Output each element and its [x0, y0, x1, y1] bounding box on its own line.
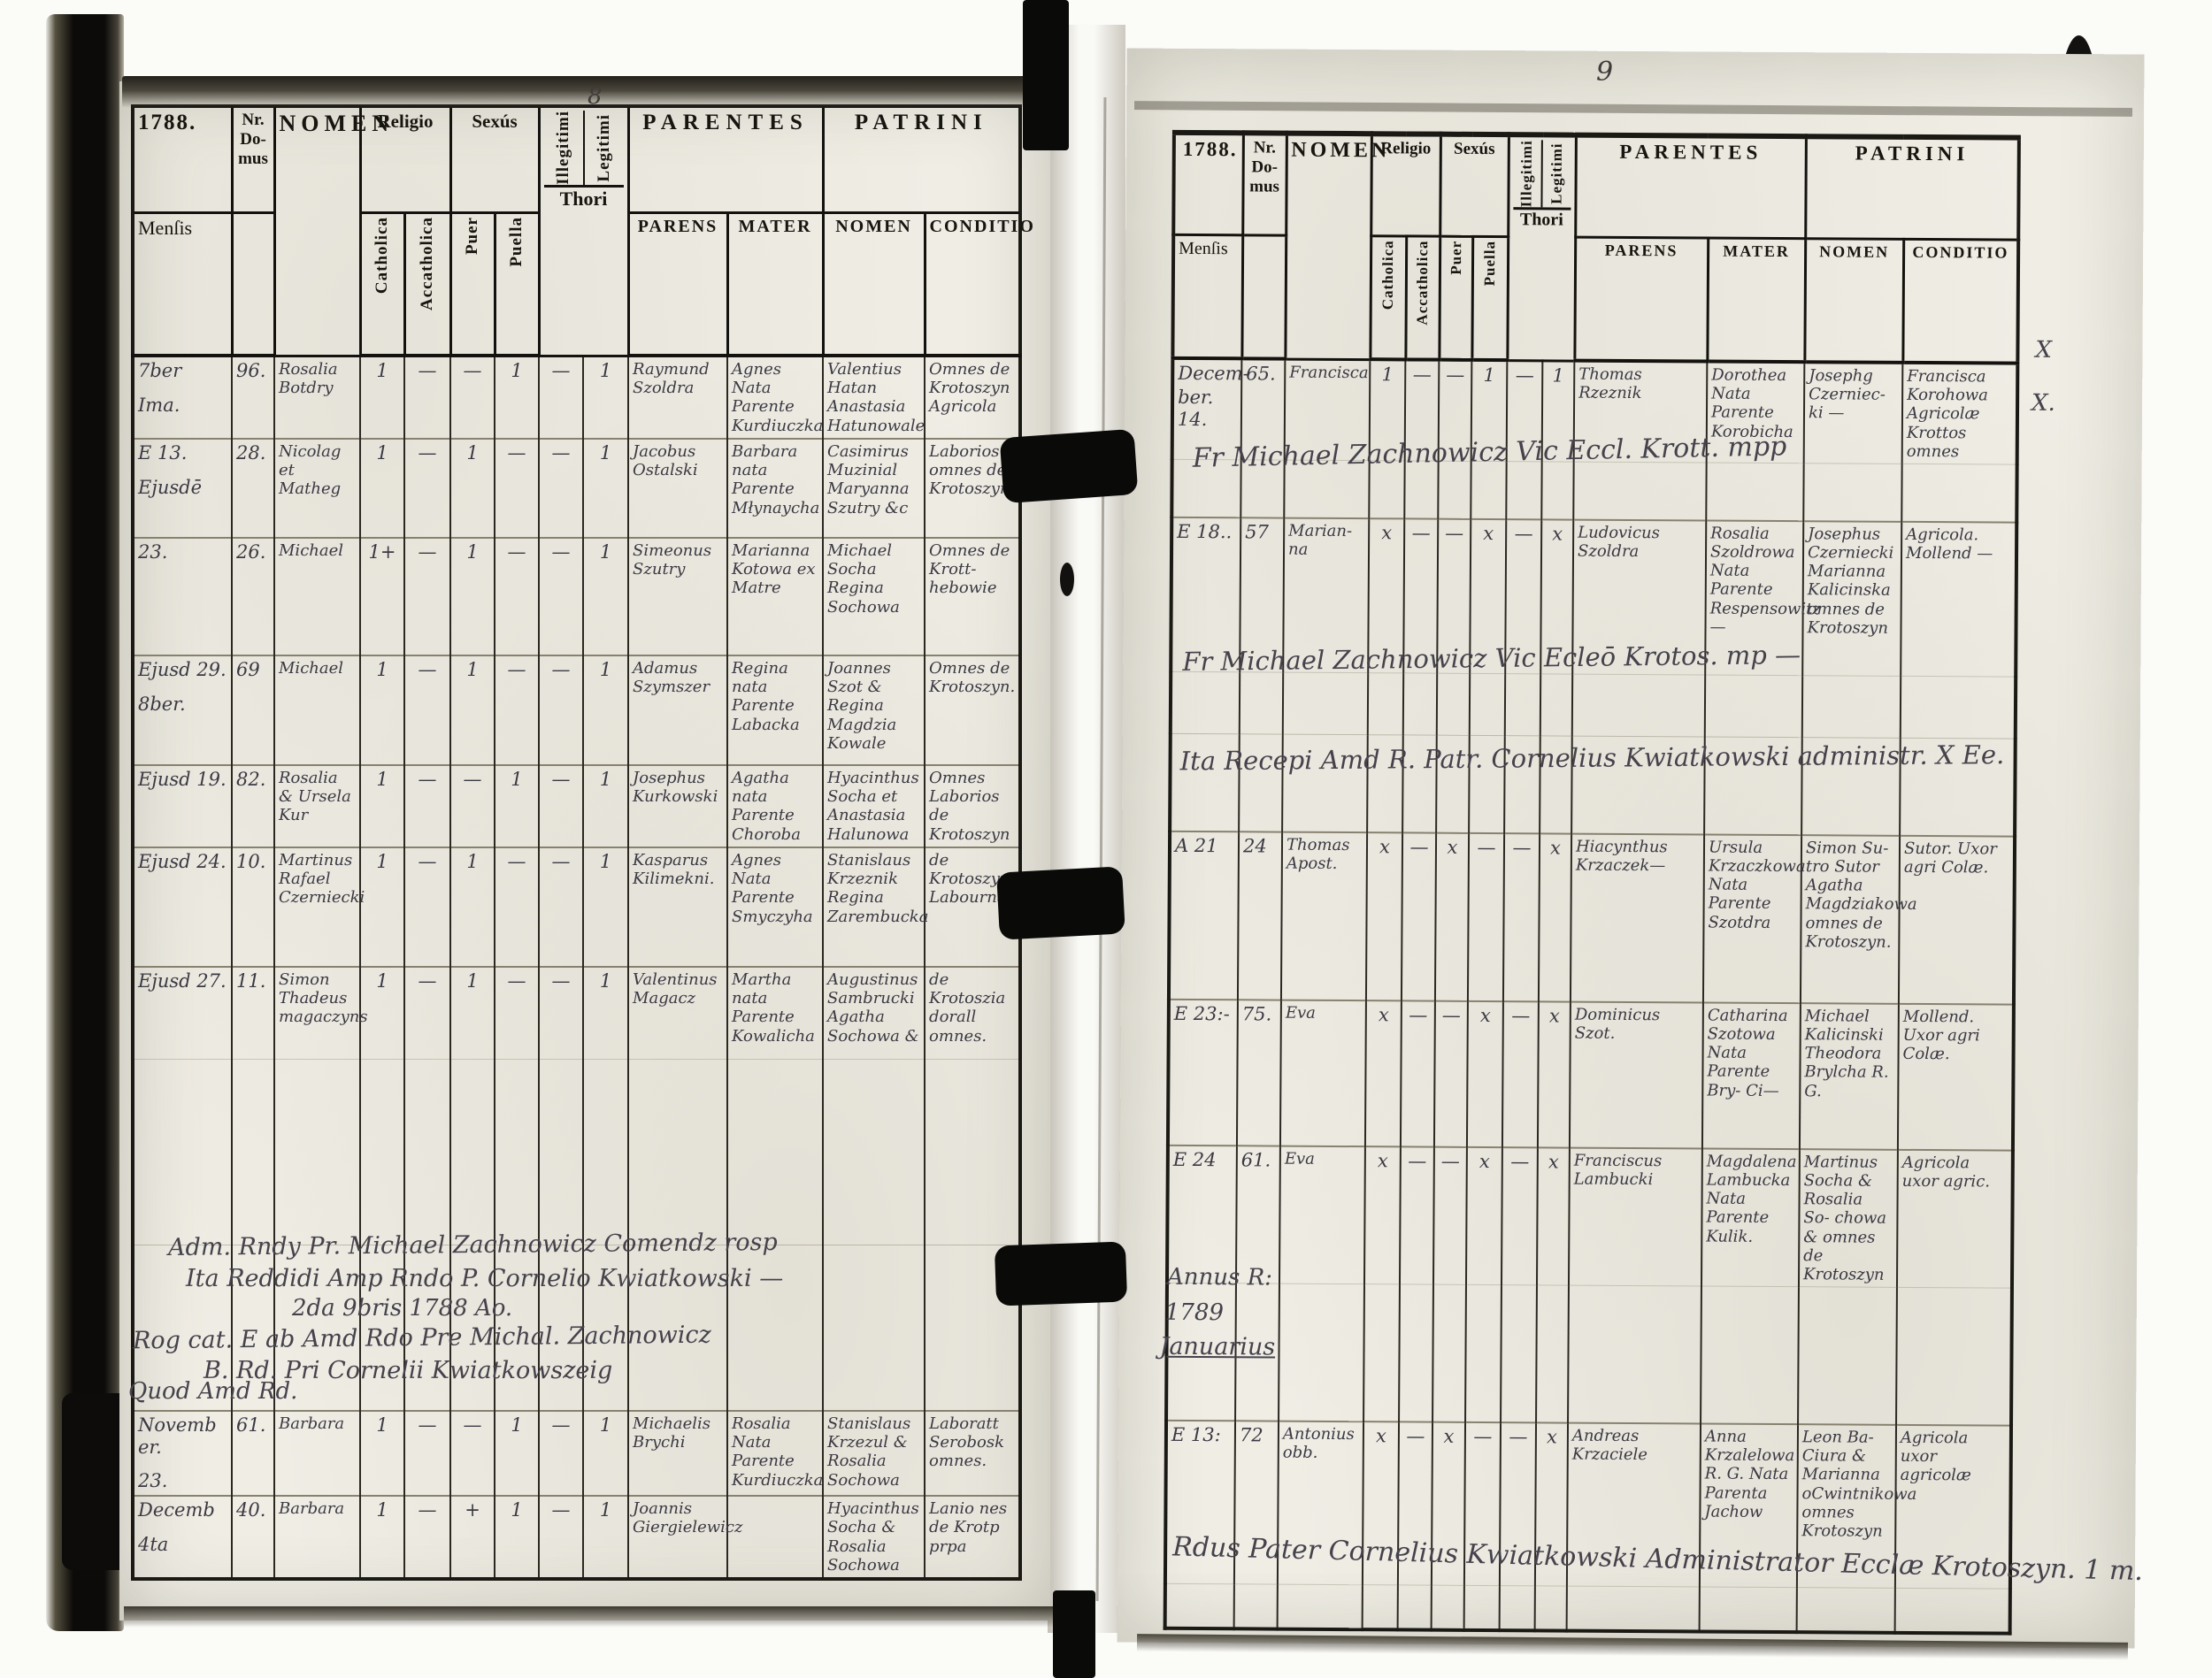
cell-nomen: Martinus Rafael Czerniecki [274, 847, 360, 967]
mark-accatholica: — [1402, 832, 1436, 1000]
cell-nr-domus: 82. [232, 765, 274, 847]
cell-conditio: Sutor. Uxor agri Colæ. [1899, 836, 2015, 1005]
mark-accatholica: — [404, 1496, 450, 1579]
cell-mensis: E 23:- [1168, 999, 1238, 1145]
mark-accatholica: — [1401, 1000, 1435, 1146]
mark-catholica: x [1366, 832, 1402, 1000]
mark-illegitimi: — [539, 847, 583, 967]
mark-accatholica: — [404, 967, 450, 1060]
column-header-puella: Puella [507, 217, 526, 267]
cell-mater: Barbara nata Parente Młynaycha [727, 439, 823, 538]
column-header-puer: Puer [463, 217, 482, 255]
mark-legitimi: 1 [583, 356, 628, 439]
cell-mater: Agatha nata Parente Choroba [727, 765, 823, 847]
register-page-left: 1788. Nr. Do- mus NOMEN Religio Sexús Il… [119, 81, 1050, 1621]
column-header-conditio: CONDITIO [925, 212, 1020, 356]
cell-conditio: Laboratt Serobosk omnes. [925, 1411, 1020, 1496]
column-header-accatholica: Accatholica [418, 217, 437, 310]
cell-mater [727, 1496, 823, 1579]
entry-row: Decemb4ta 40. Barbara 1 — + 1 — 1 Joanni… [133, 1496, 1020, 1579]
cell-conditio: Omnes de Krotoszyn. [925, 655, 1020, 765]
scanned-register-spread: { "scan": { "left_page_number": "8", "ri… [0, 0, 2212, 1678]
mark-puer: — [1434, 1000, 1468, 1146]
mark-puella: — [495, 439, 539, 538]
mark-puer: — [450, 356, 495, 439]
mark-catholica: x [1364, 1146, 1401, 1284]
mark-illegitimi: — [1503, 833, 1540, 1001]
mark-illegitimi: — [539, 538, 583, 655]
cell-mater: Agnes Nata Parente Kurdiuczka [727, 356, 823, 439]
cell-parens: Franciscus Lambucki [1569, 1147, 1702, 1286]
cell-nomen: Barbara [274, 1496, 360, 1579]
cell-patrini-nomen: Michael Kalicinski Theodora Brylcha R. G… [1800, 1003, 1899, 1150]
binding-tie-bottom [1053, 1590, 1095, 1678]
cell-nr-domus: 75. [1237, 1000, 1281, 1145]
mark-puer: — [450, 1411, 495, 1496]
mark-legitimi: x [1537, 1147, 1570, 1285]
mark-catholica: 1 [360, 765, 404, 847]
column-header-illegitimi: Illegitimi [554, 111, 573, 185]
mark-legitimi: 1 [583, 1411, 628, 1496]
column-header-mensis: Menſis [1172, 234, 1242, 358]
column-header-catholica: Catholica [373, 217, 392, 294]
mark-illegitimi: — [539, 765, 583, 847]
mark-catholica: 1 [360, 356, 404, 439]
cell-patrini-nomen: Joannes Szot & Regina Magdzia Kowale [823, 655, 925, 765]
margin-cross-mark-2: X. [2032, 390, 2055, 417]
cell-mensis: Ejusd 29.8ber. [133, 655, 232, 765]
column-header-puella: Puella [1481, 240, 1499, 285]
mark-puer: — [450, 765, 495, 847]
column-header-accatholica: Accatholica [1414, 240, 1432, 325]
return-note-line3: 2da 9bris 1788 Ao. [292, 1295, 512, 1322]
cell-patrini-nomen: Simon Su- tro Sutor Agatha Magdziakowa o… [1801, 835, 1900, 1004]
cell-mensis: Ejusd 19. [133, 765, 232, 847]
column-header-parens: PARENS [628, 212, 727, 356]
cell-parens: Valentinus Magacz [628, 967, 727, 1060]
cell-patrini-nomen: Stanislaus Krzezul & Rosalia Sochowa [823, 1411, 925, 1496]
entry-row: E 13.Ejusdē 28. Nicolag et Matheg 1 — 1 … [133, 439, 1020, 538]
column-header-sexus: Sexús [1440, 134, 1509, 236]
column-header-thori: Thori [1513, 210, 1571, 230]
mark-accatholica: — [1400, 1146, 1434, 1284]
cell-nr-domus: 61. [232, 1411, 274, 1496]
mark-catholica: 1 [360, 847, 404, 967]
cell-nr-domus: 11. [232, 967, 274, 1060]
cell-mensis: Ejusd 27. [133, 967, 232, 1060]
column-header-legitimi: Legitimi [1548, 143, 1565, 205]
binding-tie-lower [995, 1241, 1127, 1306]
spacer-row [133, 1060, 1020, 1245]
marginal-note-row [1165, 1584, 2010, 1634]
cell-nr-domus: 10. [232, 847, 274, 967]
cell-parens: Jacobus Ostalski [628, 439, 727, 538]
cell-mensis: Novemb er.23. [133, 1411, 232, 1496]
mark-accatholica: — [404, 538, 450, 655]
mark-accatholica: — [404, 1411, 450, 1496]
column-header-nr-blank [1241, 234, 1286, 358]
page-bottom-shadow-left [124, 1606, 1062, 1628]
mark-legitimi: 1 [583, 538, 628, 655]
cell-nr-domus: 24 [1238, 831, 1282, 1000]
entry-row: Ejusd 19. 82. Rosalia & Ursela Kur 1 — —… [133, 765, 1020, 847]
cell-mensis: E 24 [1167, 1145, 1237, 1283]
cell-nomen: Eva [1280, 1000, 1366, 1146]
cell-conditio: de Krotoszia dorall omnes. [925, 967, 1020, 1060]
mark-catholica: 1 [360, 1496, 404, 1579]
column-header-illegitimi: Illegitimi [1518, 140, 1536, 207]
cell-mensis: A 21 [1169, 831, 1239, 999]
mark-accatholica: — [404, 847, 450, 967]
cell-nomen: Eva [1279, 1145, 1365, 1284]
entry-row: A 21 24 Thomas Apost. x — x — — x Hiacyn… [1169, 831, 2015, 1004]
cell-conditio: Omnes Laborios de Krotoszyn [925, 765, 1020, 847]
entry-row: E 24 61. Eva x — — x — x Franciscus Lamb… [1167, 1145, 2013, 1288]
column-header-legitimacy: Illegitimi Legitimi Thori [539, 106, 628, 356]
mark-illegitimi: — [539, 356, 583, 439]
cell-patrini-nomen: Josephus Czerniecki Marianna Kalicinska … [1802, 521, 1901, 677]
cell-mater: Catharina Szotowa Nata Parente Bry- Ci— [1702, 1002, 1801, 1149]
cell-mater: Magdalena Lambucka Nata Parente Kulik. [1701, 1148, 1800, 1287]
entry-row: Novemb er.23. 61. Barbara 1 — — 1 — 1 Mi… [133, 1411, 1020, 1496]
column-header-puer: Puer [1447, 240, 1464, 274]
mark-legitimi: 1 [583, 1496, 628, 1579]
entry-row: Ejusd 24. 10. Martinus Rafael Czerniecki… [133, 847, 1020, 967]
register-page-right: 1788. Nr. Do- mus NOMEN Religio Sexús Il… [1118, 49, 2145, 1649]
cell-nomen: Barbara [274, 1411, 360, 1496]
cell-parens: Hiacynthus Krzaczek— [1571, 833, 1704, 1002]
cell-conditio: Francisca Korohowa Agricolæ Krottos omne… [1902, 363, 2018, 464]
mark-accatholica: — [404, 356, 450, 439]
column-header-sexus: Sexús [450, 106, 539, 212]
cell-mater: Marianna Kotowa ex Matre [727, 538, 823, 655]
cell-mensis: 23. [133, 538, 232, 655]
column-header-patrini: PATRINI [823, 106, 1020, 212]
page-top-shadow-left [122, 76, 1049, 108]
cell-patrini-nomen: Casimirus Muzinial Maryanna Szutry &c [823, 439, 925, 538]
margin-cross-mark-1: X [2035, 337, 2052, 364]
year-label: 1788. [1173, 133, 1243, 234]
month-heading-januarius: Januarius [1159, 1333, 1275, 1361]
mark-catholica: 1 [360, 439, 404, 538]
cell-patrini-nomen: Valentius Hatan Anastasia Hatunowale [823, 356, 925, 439]
mark-puella: — [495, 655, 539, 765]
mark-catholica: 1 [360, 1411, 404, 1496]
mark-legitimi: 1 [583, 847, 628, 967]
cell-mater: Regina nata Parente Labacka [727, 655, 823, 765]
entry-row: E 23:- 75. Eva x — — x — x Dominicus Szo… [1168, 999, 2014, 1150]
cell-nr-domus: 69 [232, 655, 274, 765]
mark-puer: 1 [450, 655, 495, 765]
cell-nr-domus: 40. [232, 1496, 274, 1579]
cell-nomen: Rosalia Botdry [274, 356, 360, 439]
cell-nomen: Nicolag et Matheg [274, 439, 360, 538]
column-header-catholica: Catholica [1379, 240, 1397, 310]
column-header-nomen: NOMEN [1285, 134, 1371, 360]
mark-puer: x [1435, 832, 1469, 1000]
cell-parens: Michaelis Brychi [628, 1411, 727, 1496]
cell-nomen: Michael [274, 655, 360, 765]
column-header-mater: MATER [727, 212, 823, 356]
cell-parens: Adamus Szymszer [628, 655, 727, 765]
column-header-nr-domus: Nr. Do- mus [1242, 133, 1286, 234]
cell-patrini-nomen: Josephg Czerniec- ki — [1804, 362, 1903, 464]
baptism-register-table-right: 1788. Nr. Do- mus NOMEN Religio Sexús Il… [1164, 130, 2021, 1636]
binding-lace-knot [1060, 563, 1074, 596]
year-heading-row [1166, 1283, 2012, 1426]
mark-legitimi: 1 [583, 439, 628, 538]
cell-parens: Dominicus Szot. [1570, 1001, 1703, 1148]
cell-mater: Martha nata Parente Kowalicha [727, 967, 823, 1060]
cell-nomen: Michael [274, 538, 360, 655]
entry-row: Ejusd 29.8ber. 69 Michael 1 — 1 — — 1 Ad… [133, 655, 1020, 765]
column-header-parentes: PARENTES [1575, 135, 1806, 239]
binding-tie-upper [1000, 429, 1139, 503]
cell-mensis: E 13.Ejusdē [133, 439, 232, 538]
mark-illegitimi: — [539, 967, 583, 1060]
mark-illegitimi: — [539, 439, 583, 538]
cell-patrini-nomen: Michael Socha Regina Sochowa [823, 538, 925, 655]
column-header-conditio: CONDITIO [1902, 239, 2018, 364]
cell-conditio: Lanio nes de Krotp prpa [925, 1496, 1020, 1579]
mark-puella: 1 [495, 1411, 539, 1496]
mark-legitimi: 1 [583, 967, 628, 1060]
cell-mater: Agnes Nata Parente Smyczyha [727, 847, 823, 967]
cell-nr-domus: 96. [232, 356, 274, 439]
cell-conditio: Agricola. Mollend — [1901, 522, 2016, 678]
cell-conditio: Omnes de Krott- hebowie [925, 538, 1020, 655]
mark-puer: 1 [450, 439, 495, 538]
mark-puer: 1 [450, 967, 495, 1060]
book-cover-left-edge [46, 14, 124, 1631]
cell-parens: Josephus Kurkowski [628, 765, 727, 847]
cell-parens: Kasparus Kilimekni. [628, 847, 727, 967]
entry-row: 23. 26. Michael 1+ — 1 — — 1 Simeonus Sz… [133, 538, 1020, 655]
column-header-mensis: Menſis [133, 212, 232, 356]
mark-accatholica: — [404, 439, 450, 538]
column-header-legitimacy: Illegitimi Legitimi Thori [1507, 134, 1576, 360]
column-header-legitimi: Legitimi [595, 114, 614, 182]
mark-accatholica: — [404, 765, 450, 847]
header-row-top: 1788. Nr. Do- mus NOMEN Religio Sexús Il… [1173, 133, 2019, 240]
mark-catholica: 1 [360, 655, 404, 765]
cell-patrini-nomen: Martinus Socha & Rosalia So- chowa & omn… [1799, 1149, 1898, 1288]
column-header-parentes: PARENTES [628, 106, 823, 212]
mark-catholica: 1+ [360, 538, 404, 655]
book-gutter [1048, 25, 1125, 1633]
entry-row: 7berIma. 96. Rosalia Botdry 1 — — 1 — 1 … [133, 356, 1020, 439]
entry-row: Ejusd 27. 11. Simon Thadeus magaczyns 1 … [133, 967, 1020, 1060]
mark-illegitimi: — [539, 1496, 583, 1579]
return-note-line2: Ita Reddidi Amp Rndo P. Cornelio Kwiatko… [186, 1265, 783, 1292]
mark-catholica: x [1365, 1000, 1402, 1146]
mark-illegitimi: — [1502, 1147, 1538, 1285]
mark-legitimi: 1 [583, 765, 628, 847]
mark-illegitimi: — [539, 1411, 583, 1496]
binding-tie-middle [996, 866, 1125, 939]
mark-puella: x [1466, 1147, 1502, 1285]
column-header-patrini: PATRINI [1805, 136, 2019, 239]
cell-nr-domus: 28. [232, 439, 274, 538]
column-header-nr-domus: Nr. Do- mus [232, 106, 274, 212]
cell-mensis: 7berIma. [133, 356, 232, 439]
return-note-line1: Adm. Rndy Pr. Michael Zachnowicz Comendz… [168, 1229, 778, 1261]
mark-puella: 1 [495, 765, 539, 847]
page-number-right: 9 [1596, 57, 1613, 88]
mark-legitimi: x [1538, 1001, 1571, 1147]
column-header-religio: Religio [1371, 134, 1440, 235]
header-row-top: 1788. Nr. Do- mus NOMEN Religio Sexús Il… [133, 106, 1020, 212]
mark-illegitimi: — [539, 655, 583, 765]
mark-puer: 1 [450, 538, 495, 655]
mark-illegitimi: — [1502, 1001, 1539, 1147]
mark-puer: + [450, 1496, 495, 1579]
mark-puella: x [1467, 1001, 1503, 1147]
cell-parens: Raymund Szoldra [628, 356, 727, 439]
mark-puella: — [495, 967, 539, 1060]
cell-patrini-nomen: Hyacinthus Socha & Rosalia Sochowa [823, 1496, 925, 1579]
annus-year: 1789 [1165, 1299, 1224, 1326]
page-number-left: 8 [588, 83, 603, 110]
annus-heading: Annus R: [1167, 1264, 1272, 1291]
mark-puer: — [1433, 1146, 1467, 1284]
cell-nomen: Rosalia & Ursela Kur [274, 765, 360, 847]
binding-tie-top [1023, 0, 1069, 150]
cell-conditio: Agricola uxor agric. [1897, 1150, 2013, 1289]
column-header-parens: PARENS [1574, 237, 1708, 362]
cell-patrini-nomen: Stanislaus Krzeznik Regina Zarembucka [823, 847, 925, 967]
mark-legitimi: 1 [583, 655, 628, 765]
cell-nr-domus: 26. [232, 538, 274, 655]
cell-mater: Ursula Krzaczkowa Nata Parente Szotdra [1703, 834, 1801, 1003]
cell-mensis: Ejusd 24. [133, 847, 232, 967]
mark-puer: 1 [450, 847, 495, 967]
column-header-patrini-nomen: NOMEN [1804, 238, 1903, 363]
mark-puella: — [1468, 833, 1504, 1001]
column-header-thori: Thori [544, 188, 624, 211]
mark-puella: 1 [495, 356, 539, 439]
cell-mater: Rosalia Nata Parente Kurdiuczka [727, 1411, 823, 1496]
cell-parens: Simeonus Szutry [628, 538, 727, 655]
marginal-note-row [1171, 671, 2016, 739]
receipt-note-line3: Quod Amd Rd. [128, 1378, 297, 1405]
cell-patrini-nomen: Hyacinthus Socha et Anastasia Halunowa [823, 765, 925, 847]
cell-nomen: Simon Thadeus magaczyns [274, 967, 360, 1060]
cell-conditio: Mollend. Uxor agri Colæ. [1898, 1004, 2014, 1151]
mark-accatholica: — [404, 655, 450, 765]
column-header-mater: MATER [1707, 238, 1805, 363]
mark-puella: 1 [495, 1496, 539, 1579]
column-header-nomen: NOMEN [274, 106, 360, 356]
column-header-patrini-nomen: NOMEN [823, 212, 925, 356]
year-label: 1788. [133, 106, 232, 212]
cell-patrini-nomen: Augustinus Sambrucki Agatha Sochowa & [823, 967, 925, 1060]
column-header-nr-blank [232, 212, 274, 356]
mark-puella: — [495, 538, 539, 655]
cell-parens: Joannis Giergielewicz [628, 1496, 727, 1579]
cell-mensis: Decemb4ta [133, 1496, 232, 1579]
mark-legitimi: x [1539, 833, 1571, 1001]
mark-puella: — [495, 847, 539, 967]
cell-nr-domus: 61. [1236, 1145, 1280, 1283]
cell-nomen: Thomas Apost. [1281, 831, 1367, 1000]
cell-conditio: Omnes de Krotoszyn Agricola [925, 356, 1020, 439]
